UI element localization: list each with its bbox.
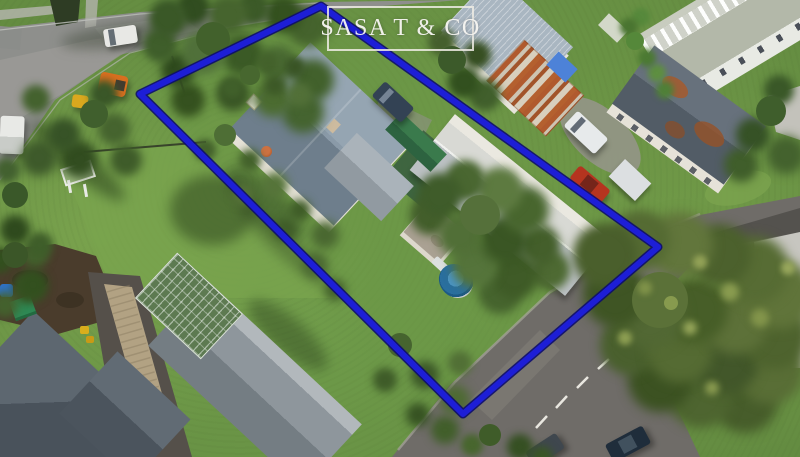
- aerial-photo: SASA T & CO: [0, 0, 800, 457]
- watermark-text: SASA T & CO: [320, 15, 480, 42]
- watermark: SASA T & CO: [327, 6, 474, 51]
- boundary-overlay: [0, 0, 800, 457]
